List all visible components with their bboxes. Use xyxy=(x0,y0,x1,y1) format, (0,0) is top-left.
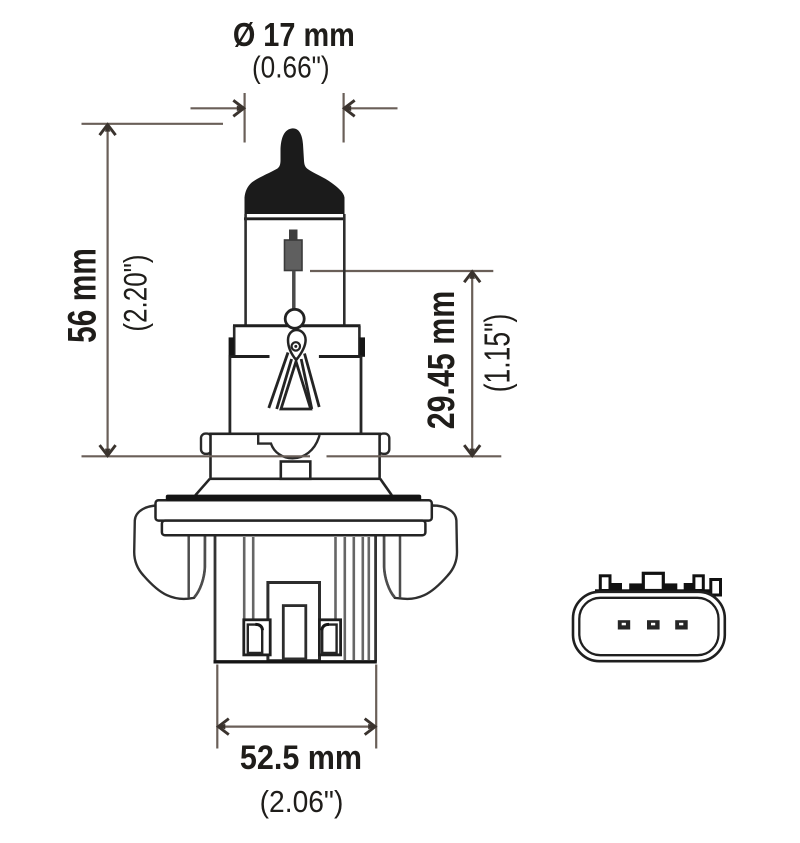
svg-text:Ø 17 mm: Ø 17 mm xyxy=(233,16,355,53)
svg-text:(2.20"): (2.20") xyxy=(118,254,154,331)
svg-text:56 mm: 56 mm xyxy=(61,248,105,343)
svg-text:(1.15"): (1.15") xyxy=(476,314,517,393)
svg-text:29.45 mm: 29.45 mm xyxy=(421,291,463,430)
svg-text:(0.66"): (0.66") xyxy=(252,50,330,85)
svg-text:(2.06"): (2.06") xyxy=(260,785,344,820)
svg-text:52.5 mm: 52.5 mm xyxy=(240,738,362,776)
